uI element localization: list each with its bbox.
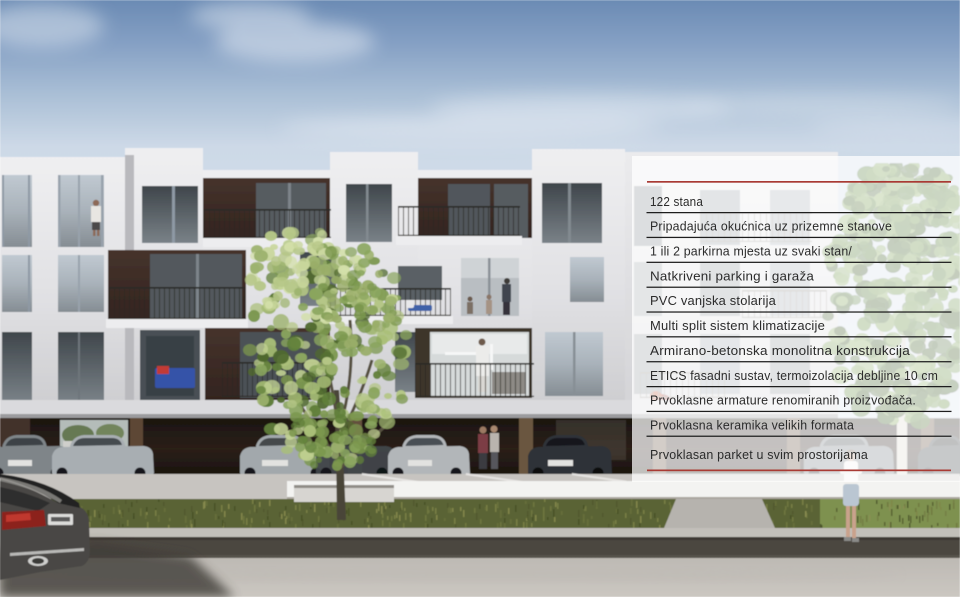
svg-text:PVC vanjska stolarija: PVC vanjska stolarija — [650, 293, 777, 308]
svg-text:Multi split sistem klimatizaci: Multi split sistem klimatizacije — [650, 318, 825, 333]
svg-text:Pripadajuća okućnica uz prizem: Pripadajuća okućnica uz prizemne stanove — [650, 219, 892, 234]
svg-text:Prvoklasne armature renomirani: Prvoklasne armature renomiranih proizvođ… — [650, 393, 916, 408]
svg-text:1 ili 2 parkirna mjesta uz sva: 1 ili 2 parkirna mjesta uz svaki stan/ — [650, 244, 852, 259]
svg-text:Natkriveni parking i garaža: Natkriveni parking i garaža — [650, 268, 815, 283]
svg-text:Prvoklasna keramika velikih fo: Prvoklasna keramika velikih formata — [650, 417, 855, 432]
svg-text:ETICS fasadni sustav, termoizo: ETICS fasadni sustav, termoizolacija deb… — [650, 368, 938, 383]
svg-text:Armirano-betonska monolitna ko: Armirano-betonska monolitna konstrukcija — [650, 343, 911, 358]
svg-text:Prvoklasan parket u svim prost: Prvoklasan parket u svim prostorijama — [650, 447, 869, 462]
svg-text:122 stana: 122 stana — [650, 194, 704, 209]
